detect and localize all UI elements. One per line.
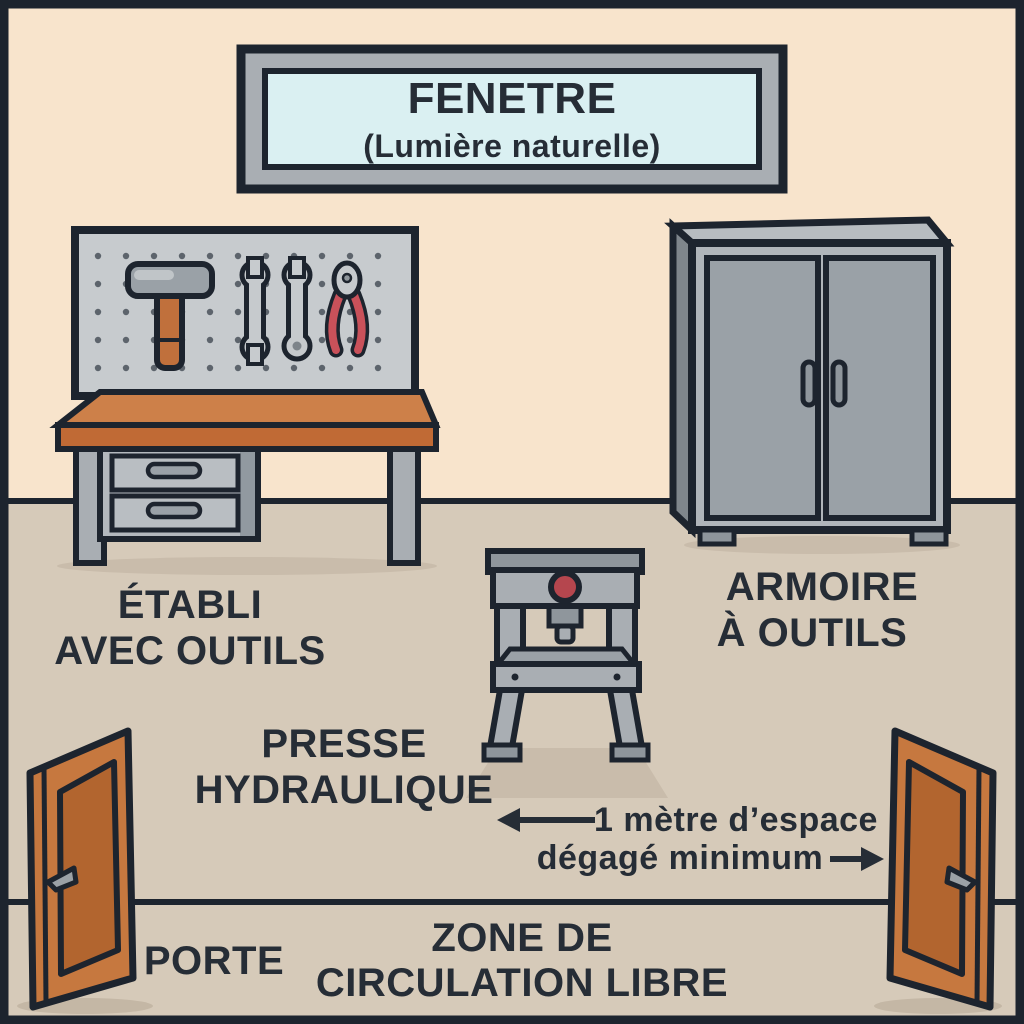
combination-wrench-icon	[284, 258, 310, 359]
hammer-handle	[157, 290, 182, 368]
clearance-note-line2: dégagé minimum	[537, 839, 824, 877]
door-right-icon	[890, 731, 993, 1007]
wrench-jaw-bottom	[248, 345, 262, 364]
window-title: FENETRE	[408, 74, 617, 123]
drawer-handle	[148, 504, 200, 517]
bench-top	[58, 392, 436, 425]
workbench-label-line1: ÉTABLI	[118, 582, 262, 627]
press-foot	[612, 745, 648, 760]
door-panel	[905, 762, 963, 974]
door-left-icon	[30, 731, 133, 1007]
press-ram-tip	[557, 626, 573, 642]
box-end-hole	[293, 342, 302, 351]
wrench-jaw-top	[248, 258, 262, 277]
diagram-svg: FENETRE (Lumière naturelle)	[0, 0, 1024, 1024]
workbench-label-line2: AVEC OUTILS	[54, 629, 325, 673]
zone-label-line2: CIRCULATION LIBRE	[316, 961, 728, 1005]
press-label-line1: PRESSE	[261, 722, 426, 766]
cabinet-handle-right	[833, 362, 845, 405]
workshop-layout-diagram: FENETRE (Lumière naturelle)	[0, 0, 1024, 1024]
press-foot	[484, 745, 520, 760]
door-panel	[60, 762, 118, 974]
cabinet-label-line1: ARMOIRE	[726, 565, 918, 609]
cabinet-label-line2: À OUTILS	[717, 610, 908, 655]
wrench-icon	[242, 258, 268, 364]
tool-cabinet	[673, 220, 947, 544]
bench-top-edge	[58, 425, 436, 449]
door-edge	[977, 768, 979, 1003]
press-label-line2: HYDRAULIQUE	[195, 768, 494, 812]
door-label: PORTE	[144, 939, 284, 983]
cabinet-handle-left	[803, 362, 815, 405]
clearance-note-line1: 1 mètre d’espace	[594, 801, 878, 839]
window-subtitle: (Lumière naturelle)	[363, 128, 661, 164]
door-edge	[44, 768, 46, 1003]
press-gauge	[551, 573, 579, 601]
drawer-handle	[148, 464, 200, 477]
zone-label-line1: ZONE DE	[431, 916, 612, 960]
window-sign: FENETRE (Lumière naturelle)	[241, 49, 783, 189]
workbench-shadow	[57, 557, 437, 575]
cabinet-foot	[912, 530, 946, 544]
cabinet-foot	[700, 530, 734, 544]
wrench-jaw-top	[290, 258, 304, 277]
bench-leg-right	[390, 449, 418, 563]
